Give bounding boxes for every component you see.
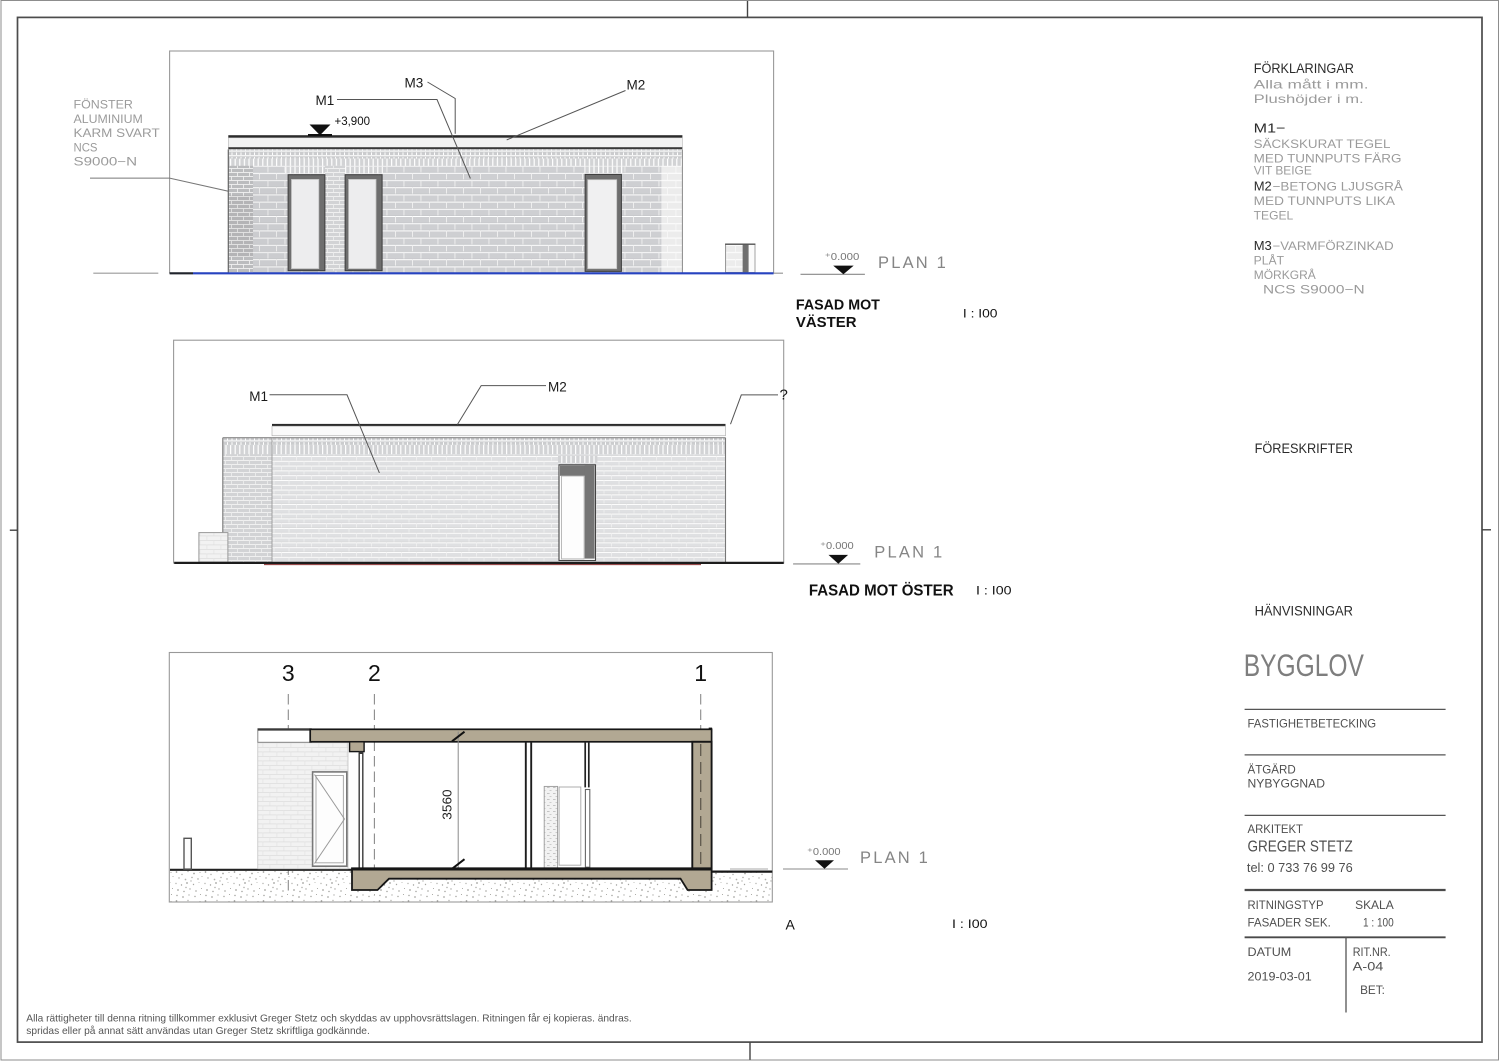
svg-text:HÄNVISNINGAR: HÄNVISNINGAR	[1255, 604, 1354, 619]
svg-text:ARKITEKT: ARKITEKT	[1248, 822, 1304, 836]
svg-text:⁺0.000: ⁺0.000	[825, 252, 860, 263]
svg-text:M2: M2	[548, 380, 567, 395]
svg-text:M1: M1	[249, 389, 268, 404]
svg-text:GREGER STETZ: GREGER STETZ	[1248, 839, 1353, 856]
svg-text:KARM SVART: KARM SVART	[74, 128, 160, 140]
svg-text:S9000−N: S9000−N	[74, 157, 138, 169]
svg-text:RITNINGSTYP: RITNINGSTYP	[1248, 898, 1324, 912]
svg-text:TEGEL: TEGEL	[1254, 209, 1294, 223]
svg-text:2019-03-01: 2019-03-01	[1248, 970, 1313, 984]
svg-text:DATUM: DATUM	[1248, 945, 1292, 959]
svg-text:1 : 100: 1 : 100	[1363, 915, 1394, 929]
svg-text:A: A	[786, 916, 796, 932]
svg-text:⁺0.000: ⁺0.000	[807, 847, 841, 858]
svg-text:M1: M1	[316, 93, 335, 108]
svg-text:NYBYGGNAD: NYBYGGNAD	[1248, 777, 1326, 791]
svg-text:3560: 3560	[439, 789, 454, 819]
svg-text:FASAD MOT ÖSTER: FASAD MOT ÖSTER	[809, 582, 954, 599]
svg-text:PLAN 1: PLAN 1	[860, 849, 930, 867]
svg-text:FASTIGHETBETECKING: FASTIGHETBETECKING	[1248, 717, 1377, 731]
svg-text:−VARMFÖRZINKAD: −VARMFÖRZINKAD	[1273, 239, 1394, 253]
svg-text:−BETONG LJUSGRÅ: −BETONG LJUSGRÅ	[1273, 178, 1403, 193]
svg-text:FASAD MOT: FASAD MOT	[796, 298, 880, 314]
svg-text:MÖRKGRÅ: MÖRKGRÅ	[1254, 267, 1316, 282]
svg-text:SÄCKSKURAT TEGEL: SÄCKSKURAT TEGEL	[1254, 137, 1391, 151]
svg-text:Alla rättigheter till denna ri: Alla rättigheter till denna ritning till…	[26, 1013, 631, 1025]
svg-text:I : I00: I : I00	[963, 309, 998, 321]
svg-text:+3,900: +3,900	[335, 116, 371, 128]
svg-text:Plushöjder i m.: Plushöjder i m.	[1254, 92, 1364, 106]
svg-text:?: ?	[780, 387, 788, 404]
svg-text:BYGGLOV: BYGGLOV	[1244, 647, 1364, 683]
svg-text:FÖRESKRIFTER: FÖRESKRIFTER	[1255, 441, 1354, 456]
svg-text:spridas eller på annat sätt an: spridas eller på annat sätt användas uta…	[26, 1025, 370, 1037]
svg-text:ÄTGÄRD: ÄTGÄRD	[1248, 762, 1297, 776]
svg-text:M3: M3	[405, 75, 424, 90]
svg-text:3: 3	[282, 660, 295, 686]
svg-text:M2: M2	[1254, 178, 1272, 193]
svg-text:M2: M2	[627, 77, 646, 92]
svg-text:BET:: BET:	[1360, 983, 1385, 997]
svg-text:ALUMINIUM: ALUMINIUM	[74, 114, 143, 126]
svg-text:⁺0.000: ⁺0.000	[820, 541, 854, 552]
svg-text:I : I00: I : I00	[952, 919, 988, 931]
svg-text:FÖRKLARINGAR: FÖRKLARINGAR	[1254, 61, 1355, 76]
svg-text:VÄSTER: VÄSTER	[796, 314, 857, 331]
svg-text:PLAN 1: PLAN 1	[874, 543, 944, 561]
svg-text:FASADER SEK.: FASADER SEK.	[1248, 915, 1331, 929]
svg-text:PLÅT: PLÅT	[1254, 252, 1285, 267]
svg-text:A-04: A-04	[1353, 959, 1384, 973]
svg-text:VIT BEIGE: VIT BEIGE	[1254, 164, 1312, 178]
svg-text:Alla mått i mm.: Alla mått i mm.	[1254, 78, 1369, 92]
svg-text:I : I00: I : I00	[976, 586, 1012, 598]
svg-text:1: 1	[694, 660, 707, 686]
svg-text:RIT.NR.: RIT.NR.	[1353, 945, 1391, 959]
svg-text:M1−: M1−	[1254, 120, 1286, 135]
svg-text:M3: M3	[1254, 238, 1272, 253]
svg-text:NCS S9000−N: NCS S9000−N	[1263, 282, 1365, 296]
svg-text:MED TUNNPUTS LIKA: MED TUNNPUTS LIKA	[1254, 194, 1395, 208]
svg-text:tel: 0 733 76 99 76: tel: 0 733 76 99 76	[1247, 861, 1353, 875]
svg-text:PLAN 1: PLAN 1	[878, 254, 948, 272]
svg-text:SKALA: SKALA	[1355, 898, 1394, 912]
svg-text:FÖNSTER: FÖNSTER	[74, 100, 133, 112]
svg-text:2: 2	[368, 660, 381, 686]
svg-text:NCS: NCS	[74, 142, 98, 154]
